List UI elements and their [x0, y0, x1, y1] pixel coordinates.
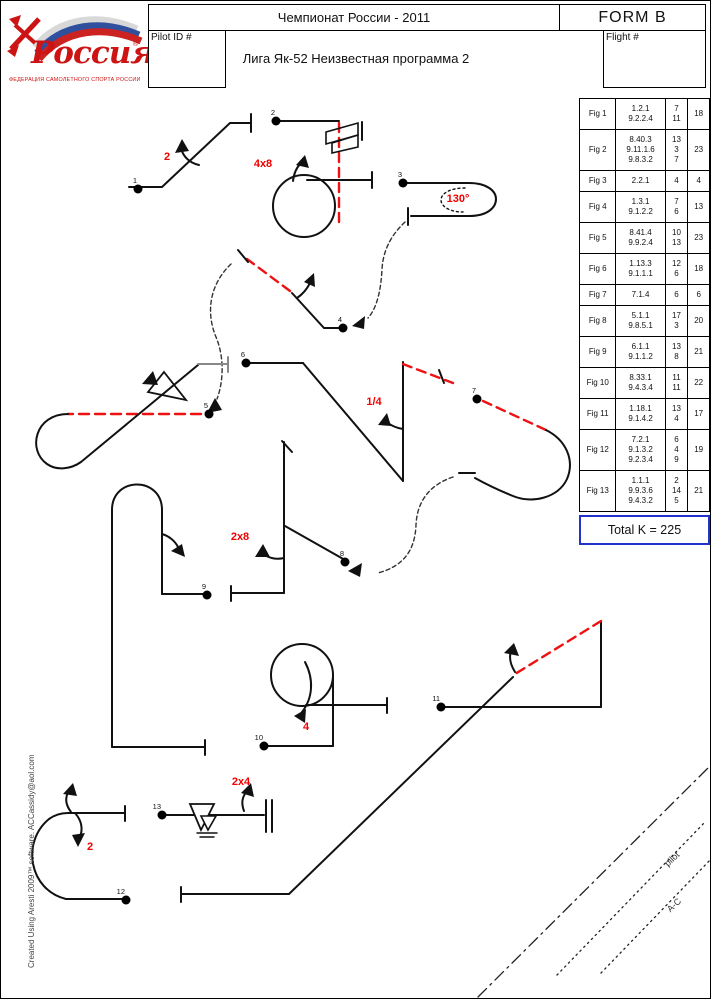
fig-label: Fig 4: [580, 192, 616, 222]
k-value: 2: [674, 476, 678, 486]
sequence-point: [158, 811, 167, 820]
k-value: 4: [674, 445, 678, 455]
k-value: 3: [674, 145, 678, 155]
sequence-point-number: 5: [204, 401, 208, 410]
k-values: 76: [666, 192, 689, 222]
k-values: 126: [666, 254, 689, 284]
catalog-number: 6.1.1: [632, 342, 650, 352]
catalog-number: 8.40.3: [629, 135, 651, 145]
sequence-point: [473, 395, 482, 404]
roll-annotation: 2: [87, 841, 93, 853]
total-k-box: Total K = 225: [579, 515, 710, 545]
sequence-point: [341, 558, 350, 567]
sequence-point-number: 3: [398, 170, 402, 179]
table-row: Fig 77.1.466: [580, 285, 709, 306]
catalog-number: 5.1.1: [632, 311, 650, 321]
k-values: 173: [666, 306, 689, 336]
k-value: 13: [672, 342, 681, 352]
catalog-numbers: 1.2.19.2.2.4: [616, 99, 665, 129]
fig-label: Fig 6: [580, 254, 616, 284]
catalog-number: 9.1.4.2: [628, 414, 652, 424]
sequence-point-number: 10: [255, 733, 263, 742]
catalog-numbers: 2.2.1: [616, 171, 665, 191]
catalog-numbers: 1.1.19.9.3.69.4.3.2: [616, 471, 665, 511]
fig-label: Fig 11: [580, 399, 616, 429]
catalog-number: 1.2.1: [632, 104, 650, 114]
sequence-point-number: 1: [133, 176, 137, 185]
table-row: Fig 41.3.19.1.2.27613: [580, 192, 709, 223]
k-values: 1111: [666, 368, 689, 398]
catalog-number: 2.2.1: [632, 176, 650, 186]
k-value: 12: [672, 259, 681, 269]
table-row: Fig 85.1.19.8.5.117320: [580, 306, 709, 337]
fig-label: Fig 2: [580, 130, 616, 170]
roll-annotation: 1/4: [366, 396, 381, 408]
catalog-number: 1.13.3: [629, 259, 651, 269]
catalog-number: 9.1.1.2: [628, 352, 652, 362]
catalog-numbers: 8.40.39.11.1.69.8.3.2: [616, 130, 665, 170]
table-row: Fig 108.33.19.4.3.4111122: [580, 368, 709, 399]
catalog-numbers: 8.41.49.9.2.4: [616, 223, 665, 253]
catalog-number: 9.11.1.6: [626, 145, 654, 155]
sequence-point: [203, 591, 212, 600]
k-values: 649: [666, 430, 689, 470]
fig-label: Fig 12: [580, 430, 616, 470]
catalog-number: 9.1.1.1: [628, 269, 652, 279]
k-value: 7: [674, 197, 678, 207]
k-value: 9: [674, 455, 678, 465]
sequence-point: [134, 185, 143, 194]
fig-label: Fig 7: [580, 285, 616, 305]
figure-total-k: 18: [688, 254, 709, 284]
figure-total-k: 4: [688, 171, 709, 191]
fig-label: Fig 9: [580, 337, 616, 367]
k-values: 2145: [666, 471, 689, 511]
sequence-point-number: 7: [472, 386, 476, 395]
roll-annotation: 2x8: [231, 531, 249, 543]
catalog-number: 9.9.2.4: [628, 238, 652, 248]
figure-3: [352, 183, 496, 329]
sequence-point-number: 2: [271, 108, 275, 117]
figure-total-k: 23: [688, 223, 709, 253]
figure-total-k: 23: [688, 130, 709, 170]
k-values: 711: [666, 99, 689, 129]
k-factor-rows: Fig 11.2.19.2.2.471118Fig 28.40.39.11.1.…: [579, 98, 710, 512]
k-value: 11: [672, 373, 680, 383]
figure-7: [348, 401, 570, 577]
catalog-number: 1.18.1: [629, 404, 651, 414]
sequence-point-number: 12: [117, 887, 125, 896]
sequence-point-number: 13: [153, 802, 161, 811]
table-row: Fig 32.2.144: [580, 171, 709, 192]
k-value: 14: [672, 486, 681, 496]
k-values: 134: [666, 399, 689, 429]
roll-annotation: 4: [303, 721, 309, 733]
k-value: 6: [674, 435, 678, 445]
k-value: 8: [674, 352, 678, 362]
figure-13: [162, 783, 272, 837]
figure-total-k: 22: [688, 368, 709, 398]
catalog-numbers: 1.13.39.1.1.1: [616, 254, 665, 284]
sequence-point: [272, 117, 281, 126]
figure-total-k: 20: [688, 306, 709, 336]
figure-12: [32, 783, 126, 899]
k-value: 13: [672, 404, 681, 414]
figure-8: [231, 441, 345, 601]
catalog-number: 1.1.1: [632, 476, 650, 486]
figure-2: [273, 121, 372, 237]
catalog-number: 1.3.1: [632, 197, 650, 207]
figure-total-k: 18: [688, 99, 709, 129]
sequence-point: [437, 703, 446, 712]
catalog-number: 9.9.3.6: [628, 486, 652, 496]
sequence-point: [122, 896, 131, 905]
roll-annotation: 4x8: [254, 158, 272, 170]
roll-annotation: 2: [164, 151, 170, 163]
k-value: 11: [672, 383, 680, 393]
k-value: 10: [672, 228, 681, 238]
form-page: Россия ® ФЕДЕРАЦИЯ САМОЛЕТНОГО СПОРТА РО…: [0, 0, 711, 999]
k-value: 4: [674, 414, 678, 424]
catalog-number: 7.1.4: [632, 290, 650, 300]
figure-total-k: 17: [688, 399, 709, 429]
catalog-numbers: 1.3.19.1.2.2: [616, 192, 665, 222]
k-value: 7: [674, 104, 678, 114]
k-value: 7: [674, 155, 678, 165]
catalog-numbers: 7.1.4: [616, 285, 665, 305]
sequence-point: [399, 179, 408, 188]
figure-4: [207, 250, 343, 413]
figure-total-k: 13: [688, 192, 709, 222]
sequence-point-number: 4: [338, 315, 342, 324]
table-row: Fig 58.41.49.9.2.4101323: [580, 223, 709, 254]
catalog-numbers: 5.1.19.8.5.1: [616, 306, 665, 336]
figure-11: [181, 621, 601, 902]
roll-annotation: 2x4: [232, 776, 250, 788]
catalog-numbers: 6.1.19.1.1.2: [616, 337, 665, 367]
k-value: 6: [674, 269, 678, 279]
fig-label: Fig 10: [580, 368, 616, 398]
figure-total-k: 19: [688, 430, 709, 470]
sequence-point-number: 9: [202, 582, 206, 591]
sequence-point-number: 11: [432, 694, 440, 703]
software-credit: Created Using Aresti 2009™ software. ACC…: [27, 754, 36, 968]
k-value: 6: [674, 207, 678, 217]
fig-label: Fig 1: [580, 99, 616, 129]
table-row: Fig 96.1.19.1.1.213821: [580, 337, 709, 368]
k-values: 6: [666, 285, 689, 305]
catalog-number: 8.33.1: [629, 373, 651, 383]
k-value: 5: [674, 496, 678, 506]
fig-label: Fig 5: [580, 223, 616, 253]
sequence-point-number: 6: [241, 350, 245, 359]
k-value: 4: [674, 176, 678, 186]
figure-total-k: 21: [688, 471, 709, 511]
table-row: Fig 111.18.19.1.4.213417: [580, 399, 709, 430]
table-row: Fig 11.2.19.2.2.471118: [580, 99, 709, 130]
figure-6: [247, 362, 453, 481]
table-row: Fig 127.2.19.1.3.29.2.3.464919: [580, 430, 709, 471]
sequence-point: [260, 742, 269, 751]
k-value: 17: [672, 311, 681, 321]
sequence-point: [205, 410, 214, 419]
sequence-point: [339, 324, 348, 333]
fig-label: Fig 13: [580, 471, 616, 511]
roll-annotation: 130°: [447, 193, 470, 205]
k-values: 4: [666, 171, 689, 191]
fig-label: Fig 3: [580, 171, 616, 191]
catalog-number: 7.2.1: [632, 435, 650, 445]
k-value: 11: [672, 114, 680, 124]
figure-5: [36, 357, 228, 468]
fig-label: Fig 8: [580, 306, 616, 336]
table-row: Fig 131.1.19.9.3.69.4.3.2214521: [580, 471, 709, 511]
k-value: 13: [672, 238, 681, 248]
figure-total-k: 21: [688, 337, 709, 367]
catalog-numbers: 7.2.19.1.3.29.2.3.4: [616, 430, 665, 470]
k-factor-table: Fig 11.2.19.2.2.471118Fig 28.40.39.11.1.…: [579, 98, 710, 545]
catalog-number: 9.4.3.2: [628, 496, 652, 506]
figure-9: [112, 485, 207, 756]
catalog-number: 9.1.3.2: [628, 445, 652, 455]
catalog-number: 8.41.4: [629, 228, 651, 238]
catalog-number: 9.2.2.4: [628, 114, 652, 124]
catalog-number: 9.4.3.4: [628, 383, 652, 393]
k-values: 138: [666, 337, 689, 367]
catalog-number: 9.1.2.2: [628, 207, 652, 217]
figure-1: [129, 114, 251, 187]
table-row: Fig 61.13.39.1.1.112618: [580, 254, 709, 285]
sequence-point: [242, 359, 251, 368]
k-value: 3: [674, 321, 678, 331]
k-value: 6: [674, 290, 678, 300]
catalog-number: 9.8.3.2: [628, 155, 652, 165]
table-row: Fig 28.40.39.11.1.69.8.3.2133723: [580, 130, 709, 171]
catalog-number: 9.2.3.4: [628, 455, 652, 465]
catalog-numbers: 1.18.19.1.4.2: [616, 399, 665, 429]
sequence-point-number: 8: [340, 549, 344, 558]
k-values: 1013: [666, 223, 689, 253]
k-value: 13: [672, 135, 681, 145]
figure-10: [264, 644, 387, 746]
k-values: 1337: [666, 130, 689, 170]
catalog-numbers: 8.33.19.4.3.4: [616, 368, 665, 398]
catalog-number: 9.8.5.1: [628, 321, 652, 331]
figure-total-k: 6: [688, 285, 709, 305]
boundary-lines: [478, 765, 711, 997]
